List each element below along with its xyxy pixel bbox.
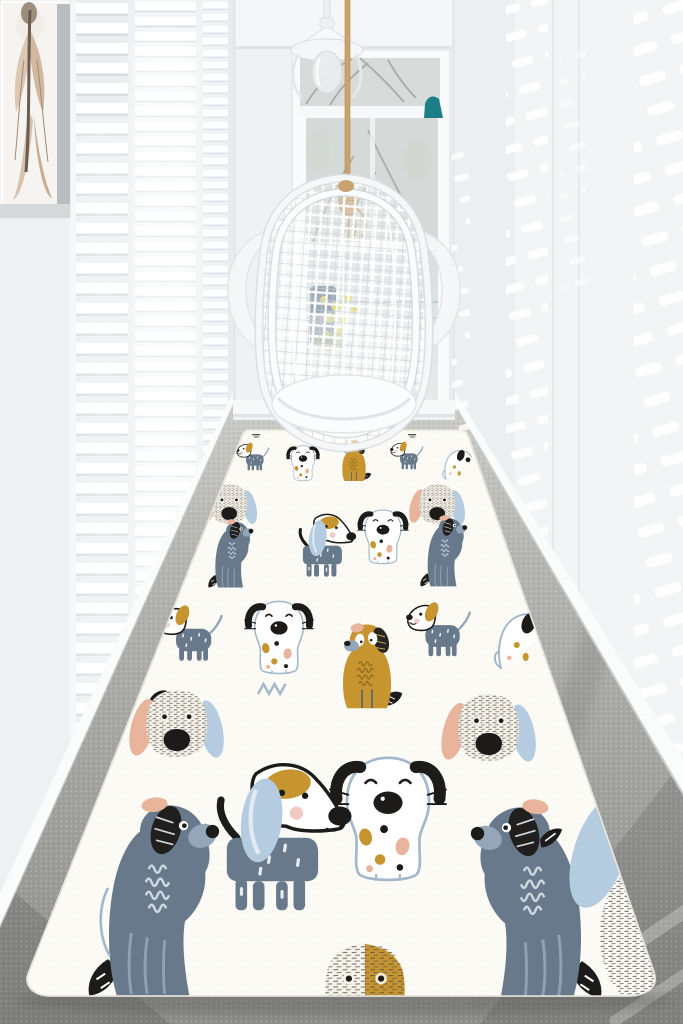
- rope-knot: [338, 180, 354, 192]
- picture-frame: [0, 0, 70, 218]
- chair-cushion: [272, 375, 416, 433]
- hallway-scene: [0, 0, 683, 1024]
- hallway-photo: [0, 0, 683, 1024]
- rope: [345, 0, 350, 190]
